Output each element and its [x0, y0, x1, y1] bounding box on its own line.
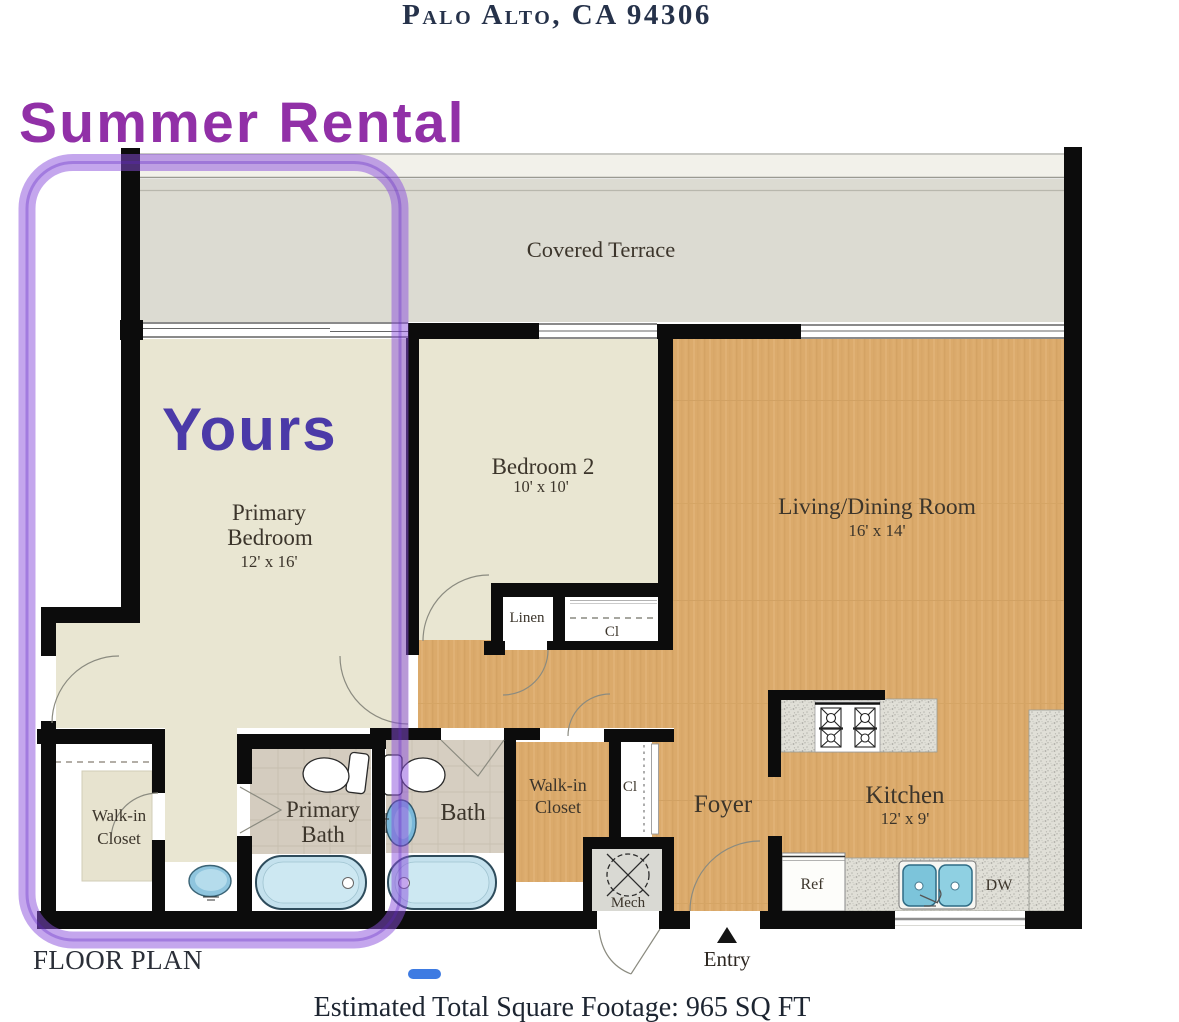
svg-text:Estimated Total Square Footage: Estimated Total Square Footage: 965 SQ F… — [314, 992, 811, 1022]
svg-text:Cl: Cl — [623, 779, 637, 795]
svg-text:16' x 14': 16' x 14' — [848, 521, 905, 540]
svg-text:Mech: Mech — [611, 895, 646, 911]
svg-text:Ref: Ref — [800, 876, 824, 893]
svg-text:Walk-in: Walk-in — [529, 775, 587, 795]
svg-text:Closet: Closet — [535, 797, 581, 817]
svg-text:Covered Terrace: Covered Terrace — [527, 237, 676, 262]
svg-text:Bedroom: Bedroom — [227, 525, 313, 550]
svg-text:Foyer: Foyer — [694, 791, 753, 818]
svg-text:Bedroom 2: Bedroom 2 — [492, 454, 595, 479]
svg-text:Bath: Bath — [440, 800, 485, 826]
svg-text:10' x 10': 10' x 10' — [513, 477, 568, 496]
svg-text:Summer Rental: Summer Rental — [19, 91, 466, 155]
svg-text:Yours: Yours — [162, 396, 338, 463]
svg-text:Closet: Closet — [97, 829, 141, 848]
svg-text:Living/Dining Room: Living/Dining Room — [778, 494, 976, 520]
svg-text:Linen: Linen — [510, 610, 545, 626]
svg-text:DW: DW — [986, 877, 1014, 894]
svg-text:FLOOR PLAN: FLOOR PLAN — [33, 945, 203, 975]
svg-text:Primary: Primary — [232, 500, 307, 525]
svg-text:Primary: Primary — [286, 797, 361, 822]
svg-text:Cl: Cl — [605, 624, 619, 640]
svg-text:12' x 16': 12' x 16' — [240, 552, 297, 571]
svg-text:Walk-in: Walk-in — [92, 806, 147, 825]
svg-text:Bath: Bath — [301, 822, 345, 847]
svg-text:12' x 9': 12' x 9' — [881, 809, 930, 828]
svg-text:Palo Alto, CA 94306: Palo Alto, CA 94306 — [402, 0, 712, 31]
svg-text:Kitchen: Kitchen — [865, 782, 945, 809]
svg-text:Entry: Entry — [704, 947, 751, 971]
